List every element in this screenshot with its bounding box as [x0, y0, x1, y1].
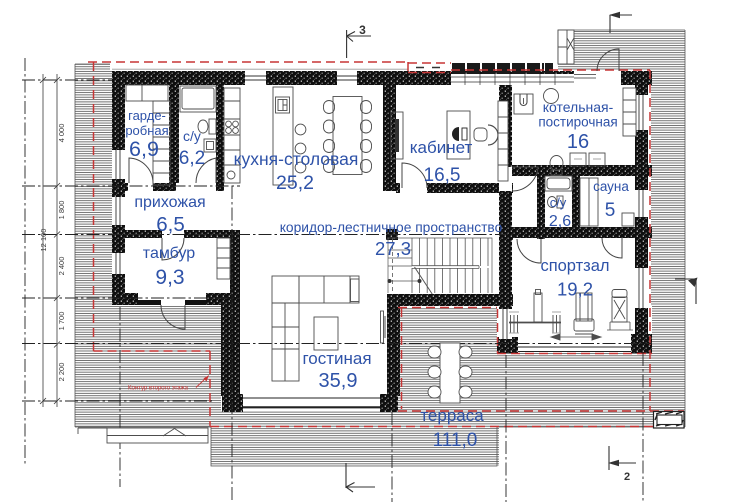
svg-text:35,9: 35,9 [319, 370, 358, 392]
svg-text:6,9: 6,9 [129, 137, 159, 161]
svg-text:2,6: 2,6 [549, 213, 571, 230]
svg-text:16: 16 [567, 131, 589, 153]
svg-text:19,2: 19,2 [557, 279, 593, 300]
svg-text:9,3: 9,3 [155, 266, 184, 289]
svg-text:коридор-лестничное пространств: коридор-лестничное пространство [280, 220, 503, 235]
svg-text:27,3: 27,3 [375, 238, 411, 259]
svg-text:2 200: 2 200 [57, 363, 66, 382]
svg-text:2: 2 [624, 471, 630, 483]
svg-text:гарде-: гарде- [128, 108, 166, 123]
svg-text:6,2: 6,2 [179, 148, 205, 169]
svg-text:гостиная: гостиная [302, 349, 371, 368]
svg-text:6,5: 6,5 [156, 213, 185, 236]
svg-text:сауна: сауна [593, 179, 629, 194]
svg-text:3: 3 [359, 23, 366, 37]
svg-text:спортзал: спортзал [540, 257, 609, 275]
svg-text:Контур второго этажа: Контур второго этажа [128, 386, 189, 392]
svg-text:1 700: 1 700 [57, 312, 66, 331]
svg-text:котельная-: котельная- [543, 99, 614, 115]
svg-text:робная: робная [125, 123, 168, 138]
svg-text:4 000: 4 000 [57, 124, 66, 143]
svg-text:25,2: 25,2 [276, 172, 314, 194]
svg-text:с/у: с/у [183, 128, 201, 144]
svg-text:16,5: 16,5 [424, 165, 461, 186]
svg-text:терраса: терраса [420, 406, 484, 425]
svg-text:тамбур: тамбур [143, 245, 196, 262]
svg-text:прихожая: прихожая [134, 194, 205, 211]
svg-text:кабинет: кабинет [410, 138, 473, 157]
svg-text:12 100: 12 100 [39, 229, 48, 252]
svg-text:с/у: с/у [550, 195, 567, 210]
svg-text:5: 5 [605, 200, 616, 221]
svg-text:1 800: 1 800 [57, 201, 66, 220]
svg-text:кухня-столовая: кухня-столовая [234, 149, 359, 169]
svg-text:111,0: 111,0 [433, 430, 478, 451]
svg-text:2 400: 2 400 [57, 257, 66, 276]
svg-text:постирочная: постирочная [538, 115, 617, 130]
